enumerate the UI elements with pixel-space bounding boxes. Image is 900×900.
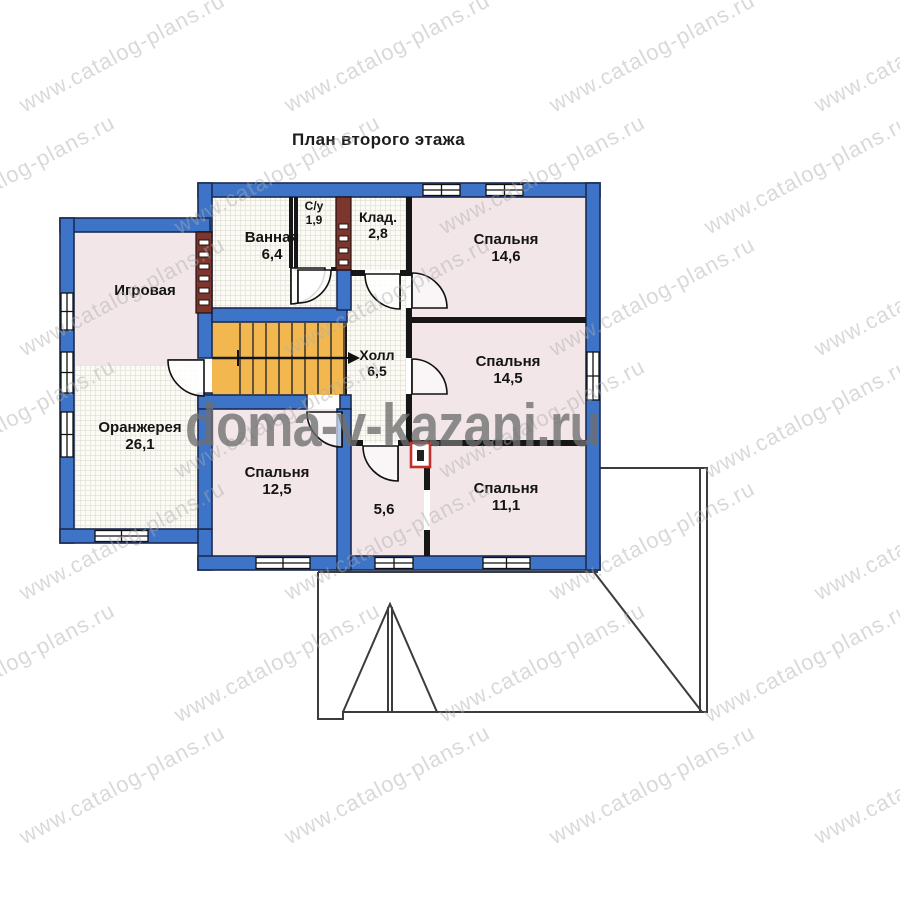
window	[375, 558, 413, 569]
window	[483, 558, 530, 569]
floor-plan-page: План второго этажа Игровая Ванная6,4 С/у…	[0, 0, 900, 900]
room-label-klad: Клад.2,8	[338, 209, 418, 241]
room-label-bedroom-146: Спальня14,6	[446, 231, 566, 265]
room-area: 26,1	[72, 436, 208, 453]
wall-stairs-top	[212, 308, 347, 322]
room-name: Спальня	[446, 480, 566, 497]
room-name: Ванная	[217, 229, 327, 246]
room-area: 12,5	[217, 481, 337, 498]
room-area: 14,5	[448, 370, 568, 387]
roof-dormer	[343, 604, 437, 712]
wall-left-block-lower	[198, 393, 212, 529]
room-label-igrovaya: Игровая	[80, 282, 210, 299]
room-label-oranzhereya: Оранжерея26,1	[72, 419, 208, 453]
room-area: 6,5	[346, 363, 408, 379]
room-area: 11,1	[446, 497, 566, 514]
room-label-vannaya: Ванная6,4	[217, 229, 327, 263]
room-name: Спальня	[448, 353, 568, 370]
room-label-corridor-56: 5,6	[352, 501, 416, 518]
window	[423, 185, 460, 196]
flue-icon	[411, 443, 430, 467]
room-label-hall: Холл6,5	[346, 347, 408, 379]
wall-bedroom125-top-right	[340, 395, 351, 409]
window	[61, 293, 73, 330]
window	[95, 531, 148, 542]
wall-vestibule-right	[337, 270, 351, 310]
window	[587, 352, 599, 400]
room-label-bedroom-125: Спальня12,5	[217, 464, 337, 498]
window	[486, 185, 523, 196]
page-title: План второго этажа	[292, 130, 465, 150]
room-name: Оранжерея	[72, 419, 208, 436]
room-label-su: С/у1,9	[290, 199, 338, 227]
room-name: Игровая	[80, 282, 210, 299]
room-label-bedroom-111: Спальня11,1	[446, 480, 566, 514]
wall-bedroom125-top-left	[198, 395, 307, 409]
room-area: 14,6	[446, 248, 566, 265]
room-area: 1,9	[290, 213, 338, 227]
staircase	[212, 322, 360, 395]
room-name: С/у	[290, 199, 338, 213]
room-area: 6,4	[217, 246, 327, 263]
room-name: Холл	[346, 347, 408, 363]
room-area: 2,8	[338, 225, 418, 241]
room-name: Спальня	[446, 231, 566, 248]
window	[61, 352, 73, 393]
room-label-bedroom-145: Спальня14,5	[448, 353, 568, 387]
window	[256, 558, 310, 569]
room-name: Спальня	[217, 464, 337, 481]
room-name: Клад.	[338, 209, 418, 225]
room-area: 5,6	[352, 501, 416, 518]
